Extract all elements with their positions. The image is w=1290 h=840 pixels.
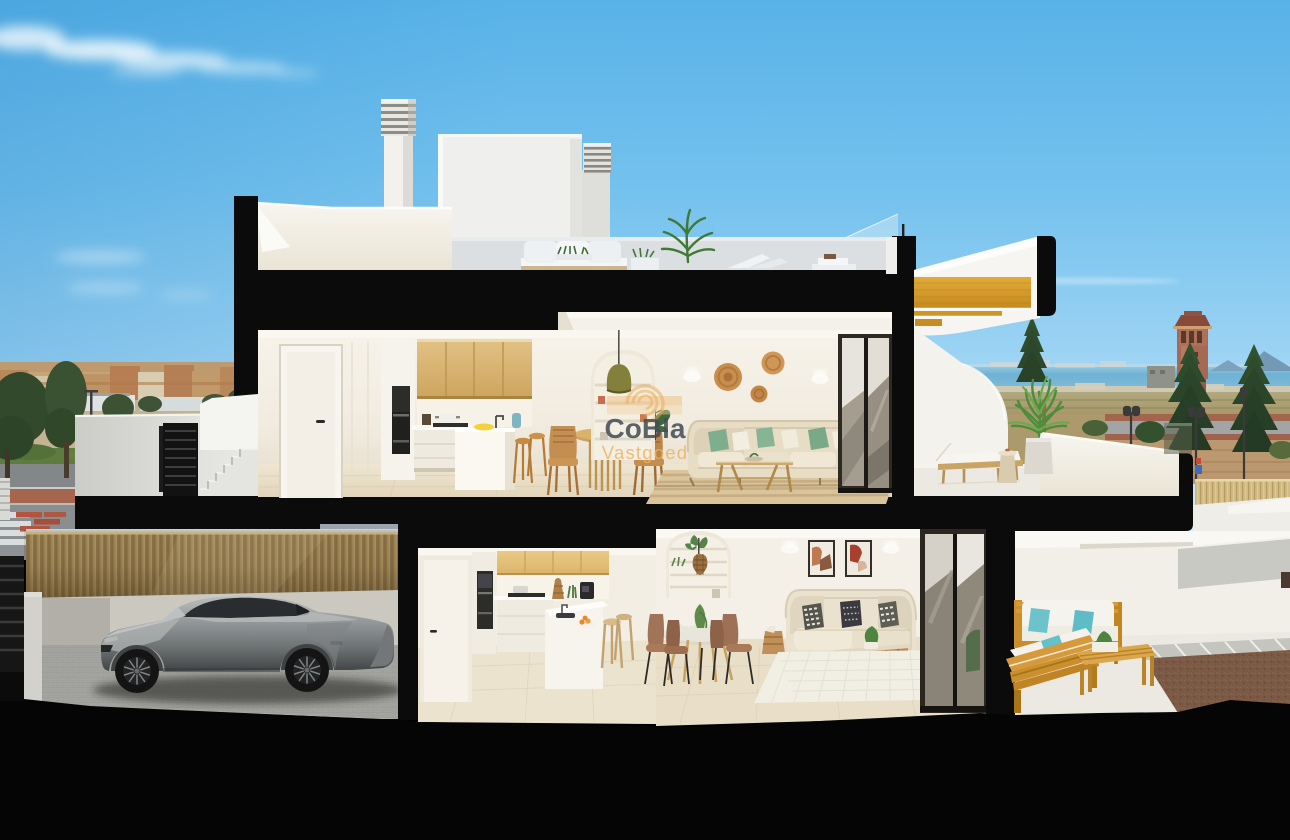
svg-text:Vastgoed: Vastgoed xyxy=(602,442,688,463)
svg-text:CoBla: CoBla xyxy=(605,413,686,444)
